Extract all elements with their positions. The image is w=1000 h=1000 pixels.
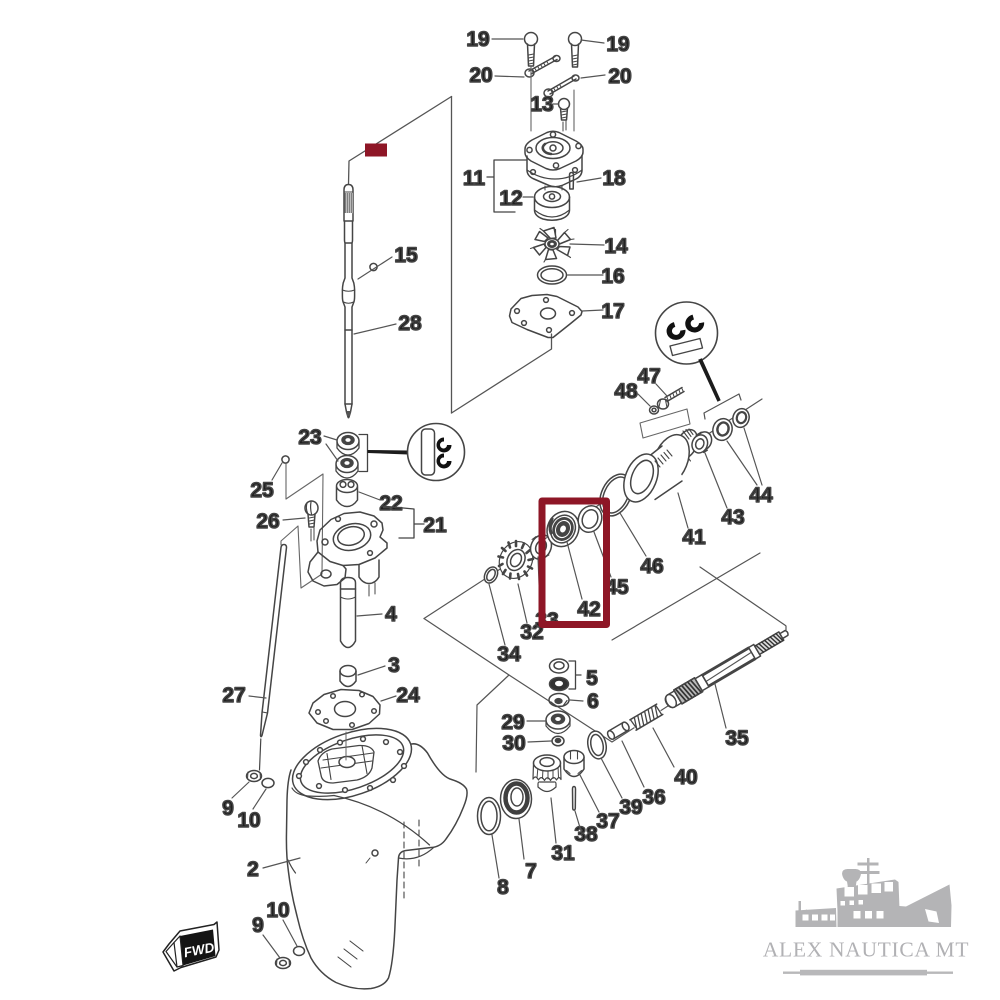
svg-text:8: 8 (497, 876, 509, 899)
svg-text:6: 6 (587, 690, 599, 713)
svg-text:18: 18 (602, 167, 626, 190)
svg-text:41: 41 (682, 526, 706, 549)
svg-text:10: 10 (266, 899, 289, 922)
svg-text:17: 17 (601, 300, 624, 323)
svg-text:21: 21 (423, 514, 447, 537)
svg-text:5: 5 (586, 667, 598, 690)
svg-text:4: 4 (385, 603, 397, 626)
svg-text:12: 12 (499, 187, 522, 210)
svg-text:9: 9 (252, 914, 264, 937)
svg-text:26: 26 (256, 510, 279, 533)
svg-text:43: 43 (721, 506, 744, 529)
svg-text:14: 14 (604, 235, 628, 258)
svg-text:15: 15 (394, 244, 418, 267)
svg-text:20: 20 (469, 64, 492, 87)
svg-text:30: 30 (502, 732, 525, 755)
svg-text:42: 42 (577, 598, 600, 621)
svg-text:7: 7 (525, 860, 537, 883)
svg-text:10: 10 (237, 809, 260, 832)
svg-text:40: 40 (674, 766, 697, 789)
svg-text:13: 13 (530, 93, 553, 116)
svg-text:25: 25 (250, 479, 274, 502)
svg-text:2: 2 (247, 858, 259, 881)
svg-text:3: 3 (388, 654, 400, 677)
svg-text:11: 11 (463, 167, 486, 190)
svg-text:19: 19 (466, 28, 489, 51)
svg-text:ALEX NAUTICA MT: ALEX NAUTICA MT (763, 938, 969, 962)
svg-text:46: 46 (640, 555, 663, 578)
svg-text:38: 38 (574, 823, 598, 846)
svg-text:19: 19 (606, 33, 629, 56)
svg-text:28: 28 (398, 312, 422, 335)
svg-text:44: 44 (749, 484, 773, 507)
svg-text:37: 37 (596, 810, 619, 833)
svg-text:16: 16 (601, 265, 624, 288)
svg-text:48: 48 (614, 380, 638, 403)
svg-text:24: 24 (396, 684, 420, 707)
svg-text:29: 29 (501, 711, 524, 734)
svg-text:27: 27 (222, 684, 245, 707)
svg-text:9: 9 (222, 797, 234, 820)
svg-text:35: 35 (725, 727, 749, 750)
svg-text:20: 20 (608, 65, 631, 88)
svg-text:22: 22 (379, 492, 402, 515)
svg-text:39: 39 (619, 796, 642, 819)
svg-text:31: 31 (551, 842, 575, 865)
svg-text:23: 23 (298, 426, 321, 449)
svg-text:36: 36 (642, 786, 665, 809)
svg-text:34: 34 (497, 643, 521, 666)
